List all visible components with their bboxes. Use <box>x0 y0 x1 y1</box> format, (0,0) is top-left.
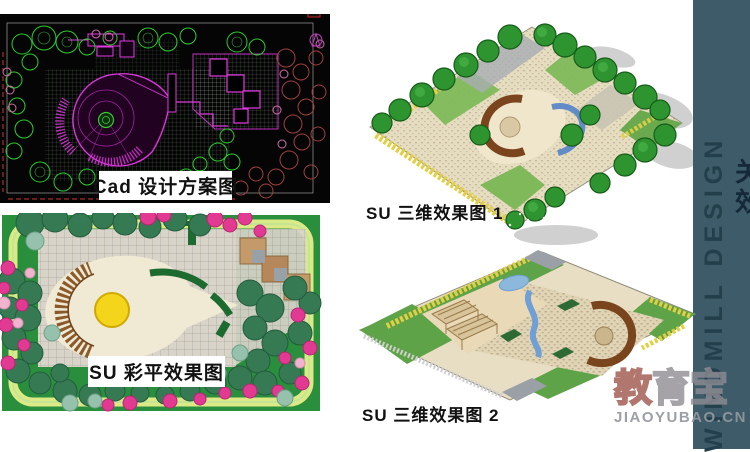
sidebar-edge-title-partial: 关 效 <box>735 158 750 218</box>
caption-cad-plan: Cad 设计方案图 <box>99 171 232 200</box>
caption-render-1: SU 三维效果图 1 <box>366 199 504 224</box>
caption-render-2: SU 三维效果图 2 <box>362 401 500 426</box>
render-2-image <box>352 244 700 406</box>
edge-char-1: 关 <box>735 158 750 188</box>
caption-color-plan: SU 彩平效果图 <box>88 356 225 387</box>
sidebar-vertical-brand-text: WINDMILL DESIGN <box>700 84 729 452</box>
edge-char-2: 效 <box>735 188 750 218</box>
sidebar-brand-bar: WINDMILL DESIGN 关 效 <box>693 0 750 449</box>
render-2-drawing <box>352 244 700 406</box>
